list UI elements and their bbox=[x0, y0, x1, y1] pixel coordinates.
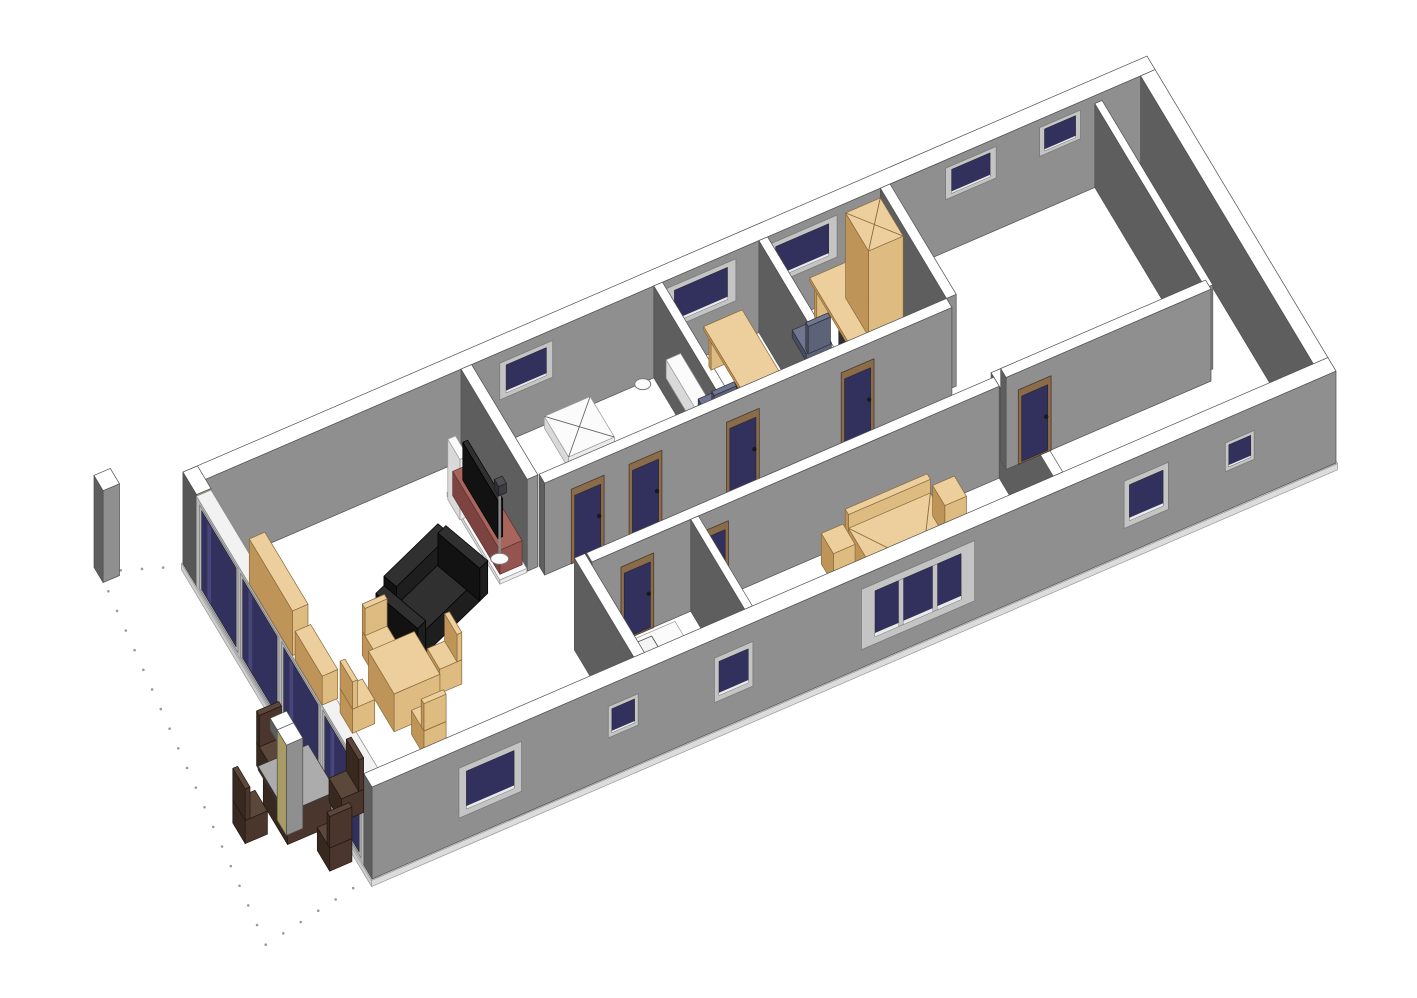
patio-chair-west bbox=[233, 766, 268, 843]
bathroom-sink bbox=[635, 379, 651, 390]
door-garage bbox=[1018, 376, 1051, 465]
floor-plan-canvas[interactable]: 3D Axonometric Floor Plan View bbox=[0, 0, 1417, 998]
floor-lamp-base bbox=[491, 553, 509, 564]
floor-plan-3d-view[interactable]: 3D Axonometric Floor Plan View bbox=[0, 0, 1417, 998]
terrace-column-rear bbox=[94, 468, 120, 582]
terrace-column-front bbox=[277, 723, 303, 836]
